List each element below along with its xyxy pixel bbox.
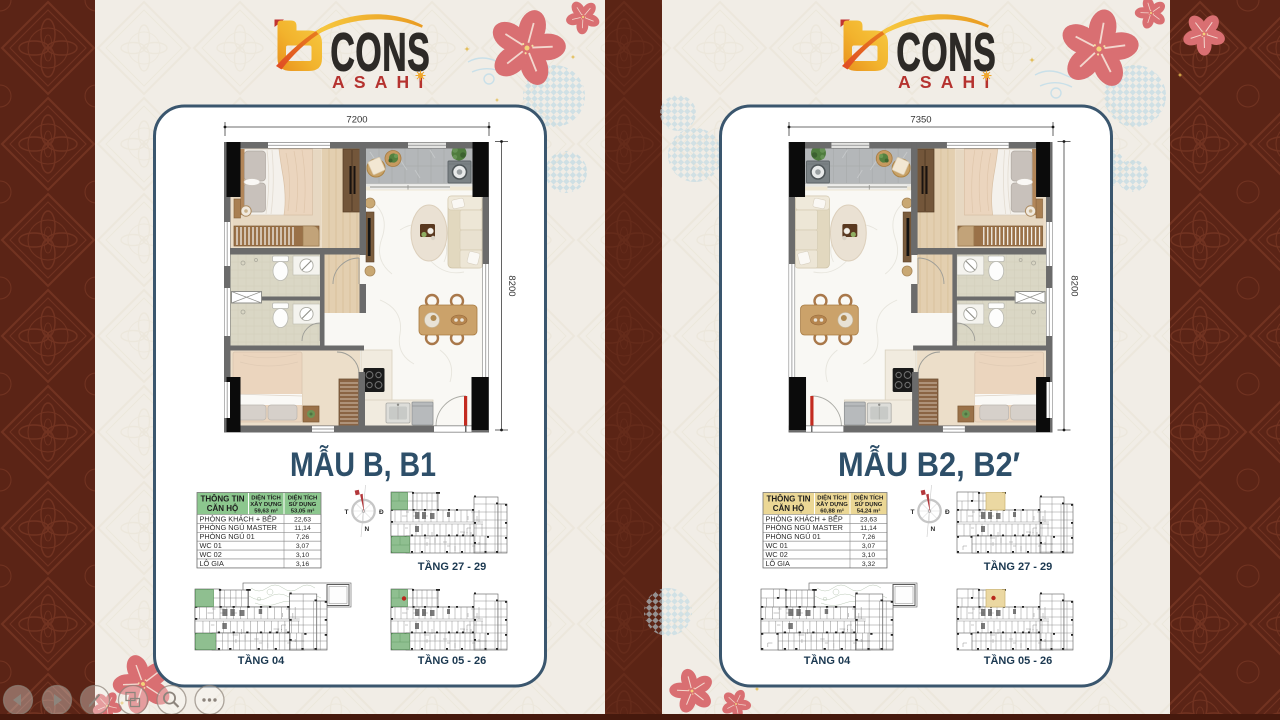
svg-text:SỬ DỤNG: SỬ DỤNG [289, 501, 317, 508]
svg-text:3,07: 3,07 [296, 543, 309, 550]
svg-text:TẦNG 04: TẦNG 04 [238, 654, 285, 667]
svg-text:WC 02: WC 02 [766, 550, 788, 559]
svg-text:7350: 7350 [910, 115, 931, 126]
svg-text:53,05 m²: 53,05 m² [291, 508, 315, 515]
svg-text:MẪU B, B1: MẪU B, B1 [290, 446, 436, 484]
svg-text:CĂN HỘ: CĂN HỘ [207, 504, 239, 513]
svg-text:3,32: 3,32 [862, 561, 875, 568]
svg-text:3,16: 3,16 [296, 561, 309, 568]
svg-text:8200: 8200 [1069, 275, 1080, 296]
svg-text:SỬ DỤNG: SỬ DỤNG [855, 501, 883, 508]
svg-text:11,14: 11,14 [294, 525, 311, 532]
svg-text:PHÒNG NGỦ 01: PHÒNG NGỦ 01 [766, 532, 821, 541]
svg-text:3,07: 3,07 [862, 543, 875, 550]
svg-text:7,26: 7,26 [862, 534, 875, 541]
svg-text:DIỆN TÍCH: DIỆN TÍCH [288, 494, 317, 502]
svg-text:PHÒNG KHÁCH + BẾP: PHÒNG KHÁCH + BẾP [200, 513, 277, 523]
svg-text:XÂY DỰNG: XÂY DỰNG [816, 501, 848, 508]
svg-text:3,10: 3,10 [862, 552, 875, 559]
svg-text:MẪU B2, B2′: MẪU B2, B2′ [838, 446, 1020, 484]
svg-text:DIỆN TÍCH: DIỆN TÍCH [251, 494, 280, 502]
svg-text:PHÒNG NGỦ 01: PHÒNG NGỦ 01 [200, 532, 255, 541]
svg-text:PHÒNG NGỦ MASTER: PHÒNG NGỦ MASTER [200, 523, 277, 532]
svg-text:11,14: 11,14 [860, 525, 877, 532]
svg-text:TẦNG 27 - 29: TẦNG 27 - 29 [418, 560, 486, 573]
svg-text:3,10: 3,10 [296, 552, 309, 559]
svg-text:7,26: 7,26 [296, 534, 309, 541]
svg-text:7200: 7200 [346, 115, 367, 126]
svg-text:THÔNG TIN: THÔNG TIN [201, 495, 245, 504]
svg-text:54,24 m²: 54,24 m² [857, 508, 881, 515]
svg-text:DIỆN TÍCH: DIỆN TÍCH [854, 494, 883, 502]
svg-text:PHÒNG KHÁCH + BẾP: PHÒNG KHÁCH + BẾP [766, 513, 843, 523]
svg-text:PHÒNG NGỦ MASTER: PHÒNG NGỦ MASTER [766, 523, 843, 532]
svg-text:TẦNG 05 - 26: TẦNG 05 - 26 [984, 654, 1052, 667]
svg-text:CĂN HỘ: CĂN HỘ [773, 504, 805, 513]
svg-text:DIỆN TÍCH: DIỆN TÍCH [817, 494, 846, 502]
svg-text:WC 02: WC 02 [200, 550, 222, 559]
svg-text:22,63: 22,63 [294, 516, 311, 523]
svg-text:WC 01: WC 01 [200, 541, 222, 550]
svg-text:8200: 8200 [506, 275, 517, 296]
svg-text:LÔ GIA: LÔ GIA [766, 559, 790, 568]
svg-text:23,63: 23,63 [860, 516, 877, 523]
svg-text:THÔNG TIN: THÔNG TIN [767, 495, 811, 504]
svg-text:WC 01: WC 01 [766, 541, 788, 550]
svg-text:TẦNG 04: TẦNG 04 [804, 654, 851, 667]
svg-text:XÂY DỰNG: XÂY DỰNG [250, 501, 282, 508]
svg-text:LÔ GIA: LÔ GIA [200, 559, 224, 568]
svg-text:TẦNG 05 - 26: TẦNG 05 - 26 [418, 654, 486, 667]
svg-text:TẦNG 27 - 29: TẦNG 27 - 29 [984, 560, 1052, 573]
